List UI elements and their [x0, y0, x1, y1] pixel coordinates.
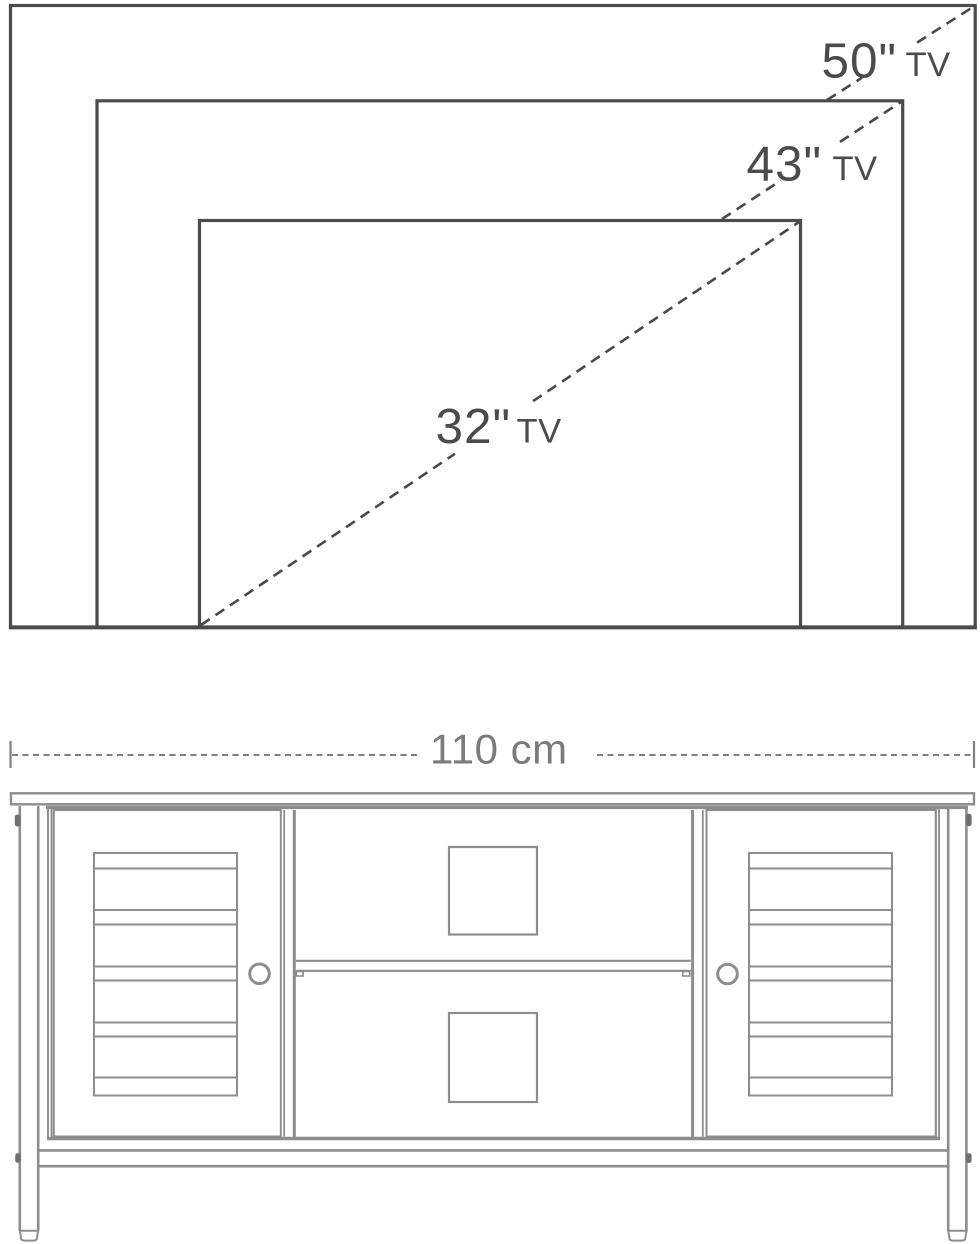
- svg-text:50": 50": [822, 34, 898, 89]
- svg-text:TV: TV: [517, 413, 562, 451]
- svg-text:110 cm: 110 cm: [430, 725, 568, 772]
- svg-text:TV: TV: [833, 150, 878, 188]
- svg-text:32": 32": [436, 399, 512, 454]
- svg-text:43": 43": [747, 137, 823, 192]
- svg-text:TV: TV: [906, 46, 951, 84]
